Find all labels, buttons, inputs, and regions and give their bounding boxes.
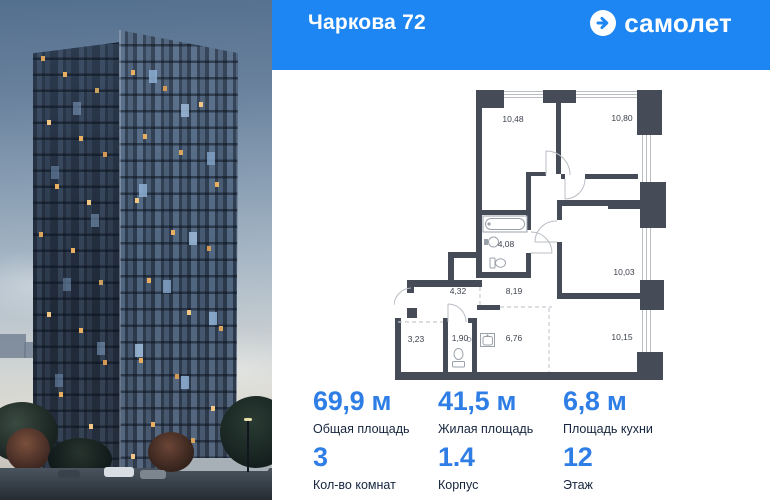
stat-room-count: 3 Кол-во комнат <box>313 444 396 492</box>
floor-plan-drawing: 10,48 10,80 4,08 10,03 4,32 8,19 3,23 1,… <box>394 88 670 384</box>
header-bar: Чаркова 72 самолет <box>272 0 770 70</box>
car <box>58 470 80 478</box>
brand-logo: самолет <box>590 10 732 36</box>
stat-label: Общая площадь <box>313 422 410 436</box>
stat-value: 3 <box>313 444 396 471</box>
stat-value: 41,5 м <box>438 388 533 415</box>
samolet-logo-icon <box>590 10 616 36</box>
plan-doors <box>394 151 585 322</box>
stat-value: 12 <box>563 444 593 471</box>
glazed-balconies <box>119 30 127 43</box>
stat-value: 6,8 м <box>563 388 653 415</box>
car <box>104 467 134 477</box>
road <box>0 468 272 500</box>
listing-panel: Чаркова 72 самолет <box>272 0 770 500</box>
street-lamp <box>247 420 249 472</box>
room-area-label: 4,32 <box>450 286 467 296</box>
room-area-label: 10,03 <box>613 267 635 277</box>
tree <box>148 432 194 472</box>
car <box>140 470 166 479</box>
stat-floor: 12 Этаж <box>563 444 593 492</box>
stat-total-area: 69,9 м Общая площадь <box>313 388 410 436</box>
stat-living-area: 41,5 м Жилая площадь <box>438 388 533 436</box>
room-area-label: 6,76 <box>506 333 523 343</box>
page-title: Чаркова 72 <box>308 11 426 35</box>
distant-buildings <box>0 334 26 358</box>
room-area-label: 10,48 <box>502 114 524 124</box>
room-area-label: 8,19 <box>506 286 523 296</box>
stat-label: Корпус <box>438 478 478 492</box>
building-photo <box>0 0 272 500</box>
stat-label: Жилая площадь <box>438 422 533 436</box>
stat-label: Площадь кухни <box>563 422 653 436</box>
room-area-label: 10,80 <box>611 113 633 123</box>
stat-label: Этаж <box>563 478 593 492</box>
stat-building: 1.4 Корпус <box>438 444 478 492</box>
room-area-label: 3,23 <box>408 334 425 344</box>
stat-value: 69,9 м <box>313 388 410 415</box>
stat-kitchen-area: 6,8 м Площадь кухни <box>563 388 653 436</box>
room-area-label: 4,08 <box>498 239 515 249</box>
room-area-label: 10,15 <box>611 332 633 342</box>
stat-value: 1.4 <box>438 444 478 471</box>
tower-corner-edge <box>119 30 121 492</box>
room-area-label: 1,90 <box>452 333 469 343</box>
floor-plan: 10,48 10,80 4,08 10,03 4,32 8,19 3,23 1,… <box>394 88 670 384</box>
stat-label: Кол-во комнат <box>313 478 396 492</box>
brand-name: самолет <box>624 10 732 36</box>
tree <box>6 428 50 472</box>
glazed-balconies <box>33 42 41 55</box>
